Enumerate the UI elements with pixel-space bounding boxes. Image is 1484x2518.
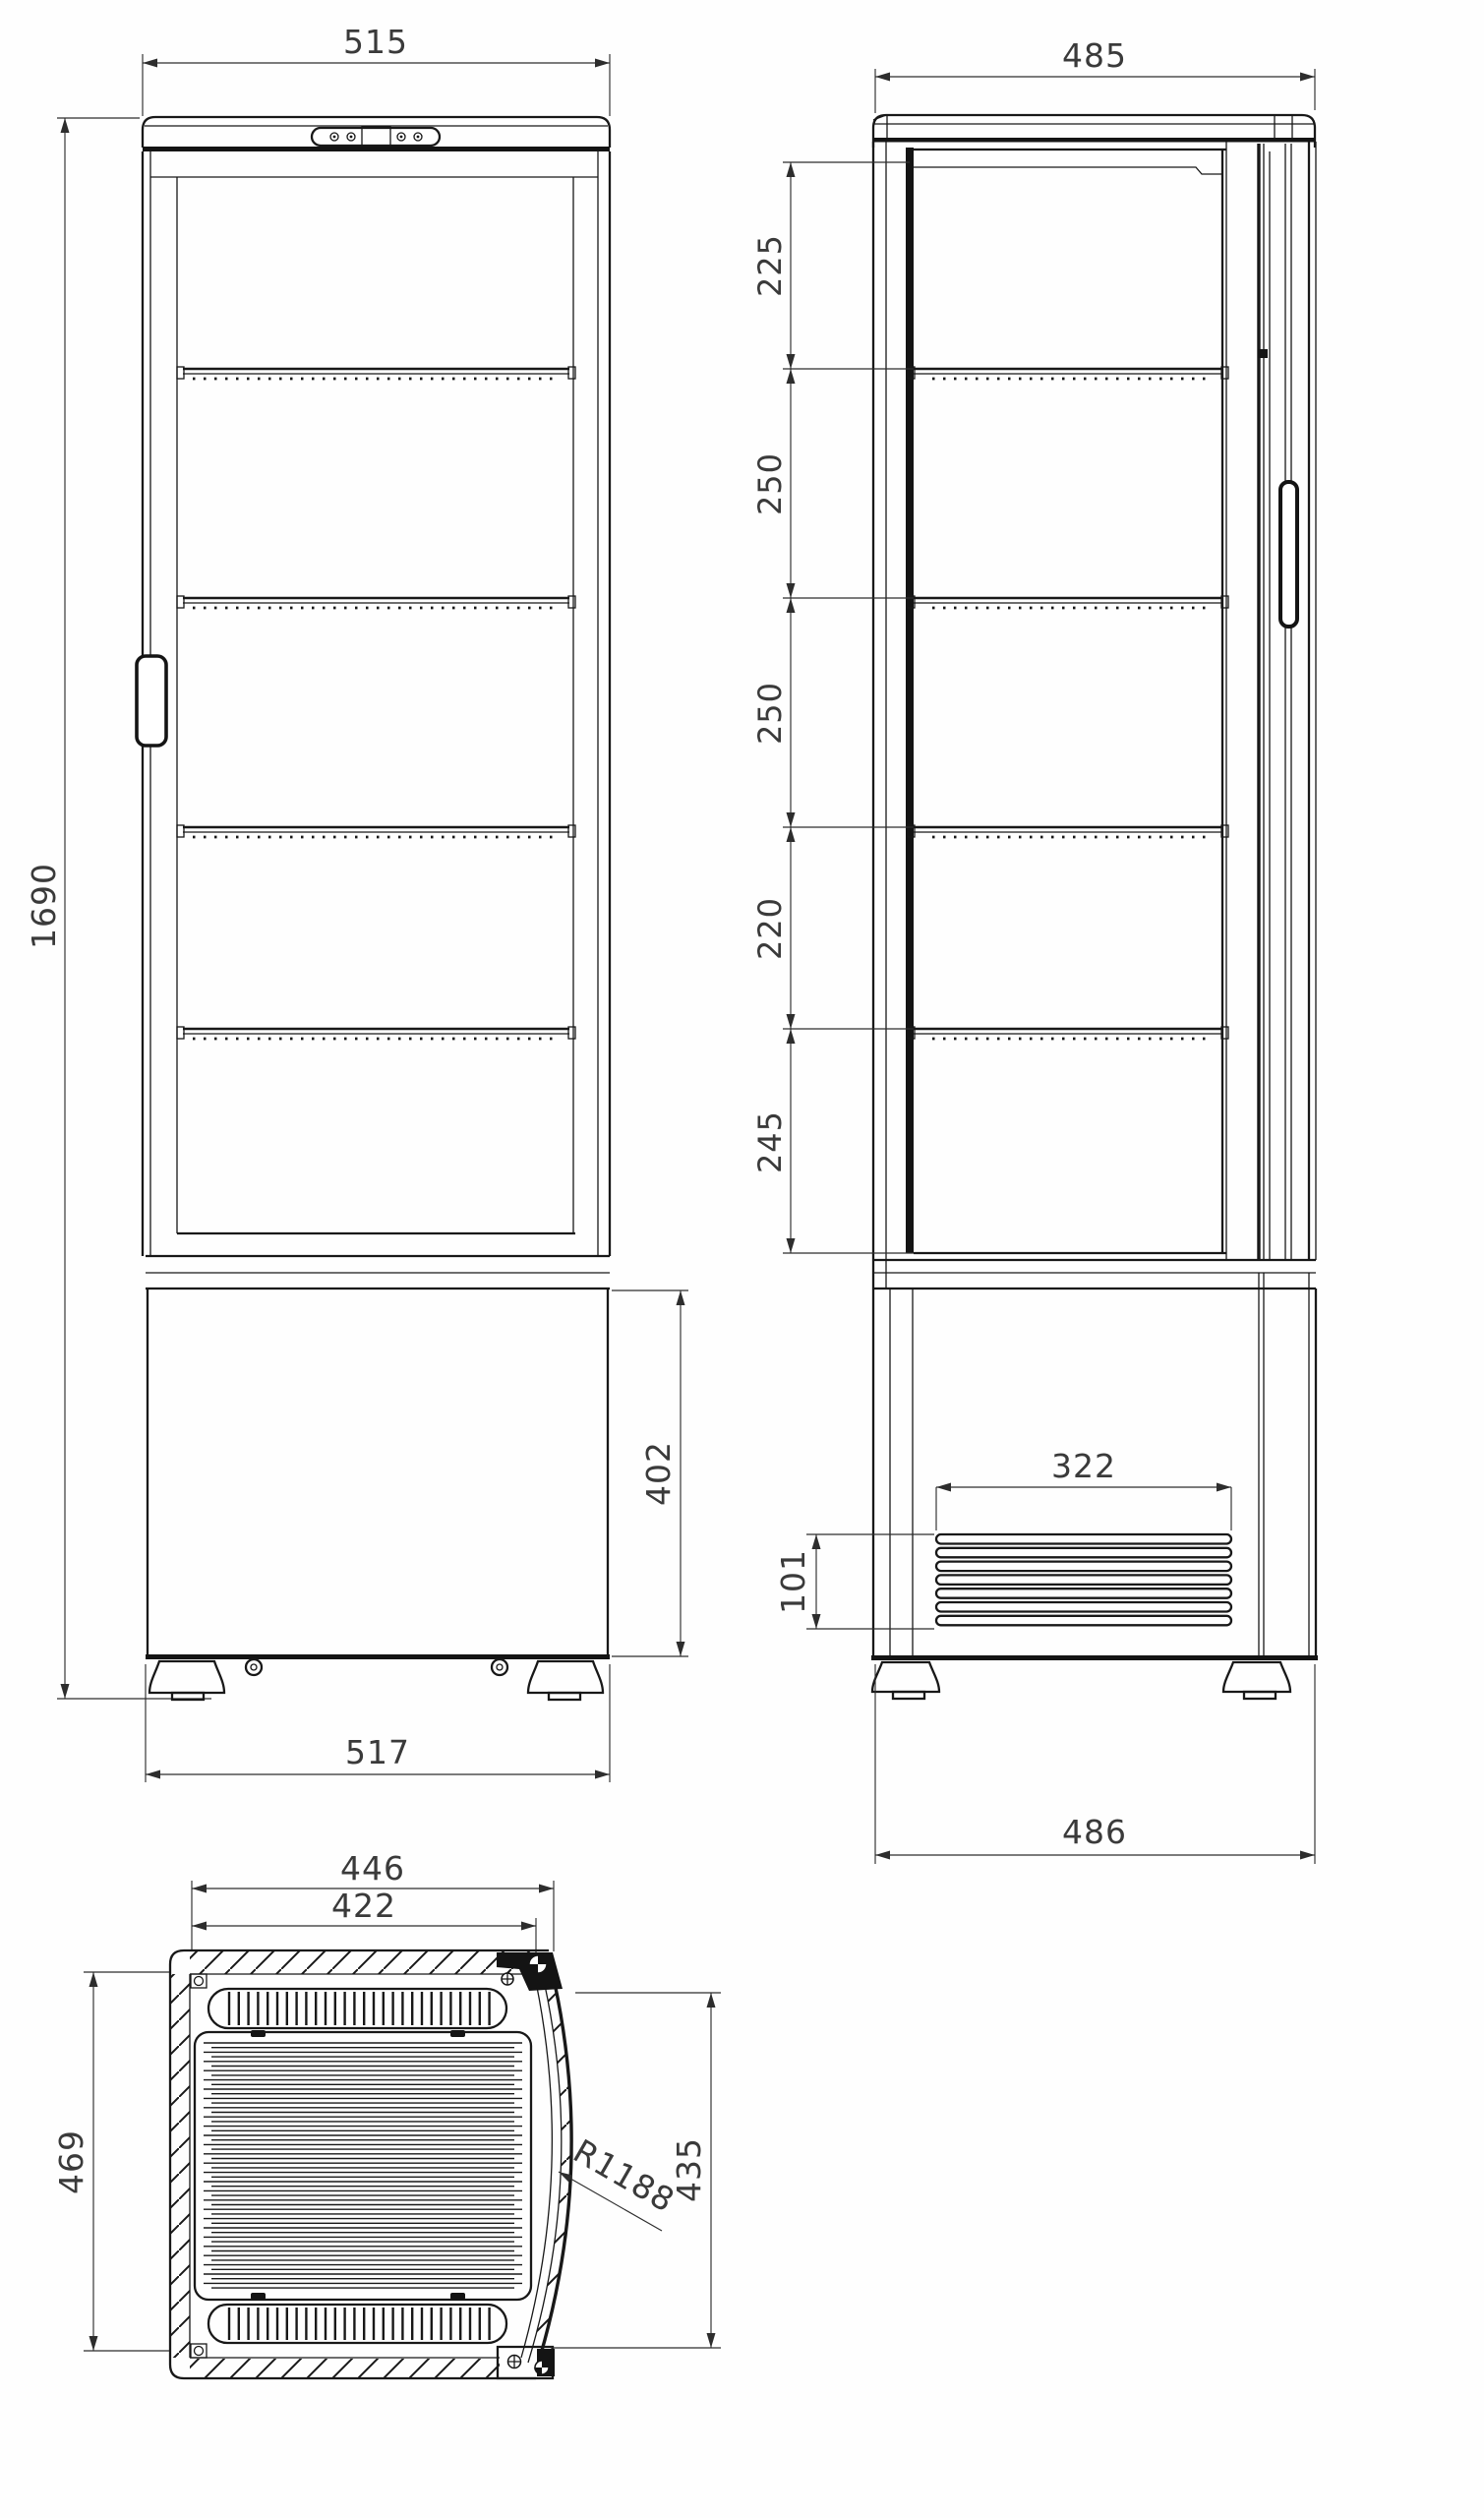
foot-side-left: [872, 1662, 939, 1692]
dim-front-top-width: 515: [143, 23, 610, 116]
left-wall-hatch: [171, 1974, 190, 2358]
dim-label-r1188: R1188: [567, 2131, 682, 2220]
vent-slats-front: [229, 2308, 490, 2340]
front-view: 515 1690: [25, 23, 688, 1782]
back-wall: [906, 148, 914, 1253]
side-shelves: [908, 367, 1228, 1039]
dim-label-245: 245: [751, 1110, 789, 1173]
dim-front-bottom-width: 517: [146, 1664, 610, 1782]
front-base: [146, 1289, 610, 1700]
front-wall-hatch: [190, 2359, 500, 2377]
foot-pad: [172, 1693, 204, 1700]
hinge-mark: [1258, 349, 1268, 358]
front-door-frame: [143, 151, 610, 1289]
dim-vent-height: 101: [774, 1534, 934, 1629]
dim-plan-inner-width: 422: [192, 1887, 536, 1955]
dim-label-1690: 1690: [25, 863, 63, 949]
door-handle-side[interactable]: [1280, 482, 1297, 627]
dim-label-250b: 250: [751, 682, 789, 745]
corner-fitting-top-left: [191, 1974, 207, 1988]
technical-drawing: 515 1690: [0, 0, 1484, 2518]
dim-label-517: 517: [345, 1733, 410, 1771]
dim-glass-radius: R1188: [559, 2131, 682, 2231]
vent-strip-front: [208, 2305, 506, 2343]
display-window: [362, 127, 390, 146]
dim-label-485: 485: [1062, 36, 1127, 75]
condenser-vent-grille: [936, 1534, 1231, 1625]
dim-label-225: 225: [751, 234, 789, 297]
dim-label-486: 486: [1062, 1813, 1127, 1851]
dim-side-bottom-depth: 486: [875, 1664, 1315, 1864]
curved-glass-hatch: [528, 1957, 571, 2370]
corner-fitting-bottom-left: [191, 2344, 207, 2358]
dim-front-total-height: 1690: [25, 118, 211, 1699]
side-view: 485: [751, 36, 1318, 1864]
dim-label-515: 515: [343, 23, 408, 61]
foot-front-right: [528, 1661, 603, 1693]
foot-front-left: [149, 1661, 224, 1693]
drawing-sheet: 515 1690: [0, 0, 1484, 2518]
dim-label-402: 402: [639, 1441, 678, 1506]
dim-vent-width: 322: [936, 1447, 1231, 1530]
vent-strip-rear: [208, 1989, 506, 2028]
dim-label-101: 101: [774, 1549, 812, 1614]
plan-view: 446 422: [52, 1849, 721, 2378]
rear-wall-hatch: [190, 1951, 544, 1974]
dim-front-base-height: 402: [612, 1290, 688, 1656]
foot-pad: [1244, 1692, 1276, 1699]
control-panel: [312, 127, 440, 146]
door-pivot-bottom-right: [498, 2347, 555, 2378]
dim-shelf-pitch-chain: 225 250 250 220 245: [751, 162, 914, 1253]
dim-label-446: 446: [340, 1849, 405, 1888]
foot-pad: [549, 1693, 580, 1700]
foot-side-right: [1223, 1662, 1290, 1692]
foot-pad: [893, 1692, 924, 1699]
vent-slats-rear: [229, 1992, 490, 2025]
side-door-edge: [1258, 142, 1316, 1260]
dim-plan-depth-left: 469: [52, 1972, 169, 2351]
screw-icon: [492, 1659, 507, 1675]
side-base: [871, 1273, 1318, 1699]
door-handle-front[interactable]: [137, 656, 166, 746]
dim-label-469: 469: [52, 2129, 90, 2194]
screw-icon: [246, 1659, 262, 1675]
dim-label-322: 322: [1051, 1447, 1116, 1485]
dim-label-422: 422: [331, 1887, 396, 1925]
side-body: [873, 142, 1316, 1289]
plan-body: [170, 1950, 571, 2378]
dim-label-250a: 250: [751, 452, 789, 515]
condenser-fins: [204, 2043, 522, 2288]
front-shelves: [177, 367, 575, 1039]
dim-label-220: 220: [751, 897, 789, 960]
side-top-cap: [873, 115, 1315, 148]
dim-side-top-depth: 485: [875, 36, 1315, 113]
